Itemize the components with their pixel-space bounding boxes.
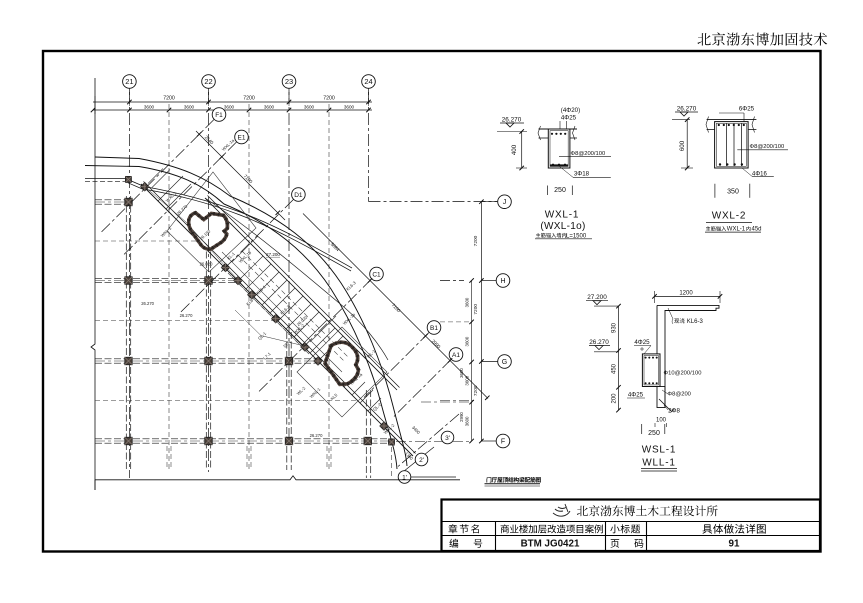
svg-text:J: J <box>503 199 507 206</box>
svg-text:WXL-1: WXL-1 <box>727 227 746 233</box>
svg-text:26.270: 26.270 <box>141 301 154 306</box>
svg-text:7200: 7200 <box>473 235 479 246</box>
svg-text:3600: 3600 <box>344 104 355 109</box>
svg-text:1200: 1200 <box>679 290 693 296</box>
svg-text:3600: 3600 <box>144 104 155 109</box>
svg-text:91: 91 <box>729 539 740 550</box>
svg-text:WLL-1: WLL-1 <box>642 458 675 469</box>
svg-text:3400: 3400 <box>411 425 422 436</box>
svg-text:3600: 3600 <box>459 368 464 378</box>
svg-text:QL-1: QL-1 <box>257 330 268 340</box>
svg-text:(WXL-1o): (WXL-1o) <box>540 221 585 232</box>
svg-text:WXL-1: WXL-1 <box>545 210 580 221</box>
svg-text:3600: 3600 <box>224 104 235 109</box>
svg-text:45d: 45d <box>752 227 762 233</box>
svg-text:5064: 5064 <box>330 242 341 253</box>
svg-text:400: 400 <box>511 144 518 155</box>
svg-text:100: 100 <box>656 418 667 424</box>
svg-text:26.270: 26.270 <box>502 117 522 124</box>
svg-text:L=1500: L=1500 <box>566 233 587 239</box>
svg-text:250: 250 <box>648 430 660 437</box>
svg-text:A1: A1 <box>452 352 460 359</box>
svg-text:200: 200 <box>612 393 618 404</box>
svg-text:7100: 7100 <box>391 303 402 314</box>
svg-text:WKL-1: WKL-1 <box>160 225 173 238</box>
svg-text:26.270: 26.270 <box>310 433 323 438</box>
svg-text:600: 600 <box>679 140 686 151</box>
svg-text:930: 930 <box>612 322 618 333</box>
svg-text:3': 3' <box>445 435 450 442</box>
svg-text:BTM JG0421: BTM JG0421 <box>521 539 580 550</box>
svg-text:WL-2: WL-2 <box>296 385 307 396</box>
svg-text:WXL-2: WXL-2 <box>712 211 747 222</box>
svg-text:3600: 3600 <box>464 336 469 346</box>
svg-text:WSL-1: WSL-1 <box>642 445 677 456</box>
svg-text:H: H <box>500 278 505 285</box>
svg-text:F: F <box>501 439 505 446</box>
svg-text:26.270: 26.270 <box>180 313 193 318</box>
svg-text:3600: 3600 <box>464 297 469 307</box>
svg-text:250: 250 <box>554 187 566 194</box>
svg-text:7200: 7200 <box>473 304 479 315</box>
svg-text:4Φ25: 4Φ25 <box>561 115 577 122</box>
svg-text:D1: D1 <box>294 192 303 199</box>
svg-text:26.020: 26.020 <box>200 262 213 267</box>
svg-text:24: 24 <box>364 77 372 86</box>
svg-text:2Φ8: 2Φ8 <box>668 408 680 415</box>
svg-text:7200: 7200 <box>323 96 335 102</box>
svg-text:27.200: 27.200 <box>587 294 607 301</box>
svg-text:2990: 2990 <box>459 412 464 422</box>
svg-text:1': 1' <box>402 474 407 481</box>
svg-text:26.150: 26.150 <box>199 228 212 241</box>
svg-text:7200: 7200 <box>473 385 479 396</box>
svg-text:4Φ25: 4Φ25 <box>628 392 644 399</box>
svg-text:WXL-1b: WXL-1b <box>342 311 357 325</box>
svg-text:E1: E1 <box>238 134 246 141</box>
svg-text:4Φ25: 4Φ25 <box>634 339 650 346</box>
svg-text:(: ( <box>672 319 674 325</box>
svg-text:KL6-3: KL6-3 <box>687 319 704 325</box>
svg-text:3600: 3600 <box>304 104 315 109</box>
svg-text:B1: B1 <box>430 325 438 332</box>
svg-text:7200: 7200 <box>243 96 255 102</box>
svg-text:26.270: 26.270 <box>677 106 697 113</box>
svg-text:22: 22 <box>204 77 212 86</box>
svg-text:2990: 2990 <box>431 339 442 350</box>
svg-text:(4Φ20): (4Φ20) <box>561 107 580 114</box>
svg-text:F1: F1 <box>215 112 223 119</box>
svg-text:KL5: KL5 <box>330 392 339 401</box>
svg-text:3600: 3600 <box>264 104 275 109</box>
svg-text:21: 21 <box>125 77 133 86</box>
svg-text:450: 450 <box>612 363 618 374</box>
svg-text:23: 23 <box>285 77 293 86</box>
svg-text:3600: 3600 <box>184 104 195 109</box>
svg-text:G: G <box>502 359 507 366</box>
svg-text:3Φ18: 3Φ18 <box>574 171 590 178</box>
svg-text:KL6-3: KL6-3 <box>345 280 357 292</box>
svg-text:2': 2' <box>419 457 424 464</box>
svg-text:350: 350 <box>727 189 739 196</box>
svg-text:WKL-1: WKL-1 <box>309 386 322 399</box>
svg-text:3600: 3600 <box>464 375 469 385</box>
svg-text:Φ8@200/100: Φ8@200/100 <box>750 144 785 150</box>
svg-text:26.270: 26.270 <box>589 339 609 346</box>
svg-text:3600: 3600 <box>464 416 469 426</box>
svg-text:C1: C1 <box>372 271 381 278</box>
svg-text:Φ10@200/100: Φ10@200/100 <box>664 371 702 377</box>
svg-text:Φ8@200: Φ8@200 <box>668 392 691 398</box>
svg-text:6Φ25: 6Φ25 <box>739 106 755 113</box>
svg-text:7200: 7200 <box>163 96 175 102</box>
svg-text:27.200: 27.200 <box>266 252 280 257</box>
